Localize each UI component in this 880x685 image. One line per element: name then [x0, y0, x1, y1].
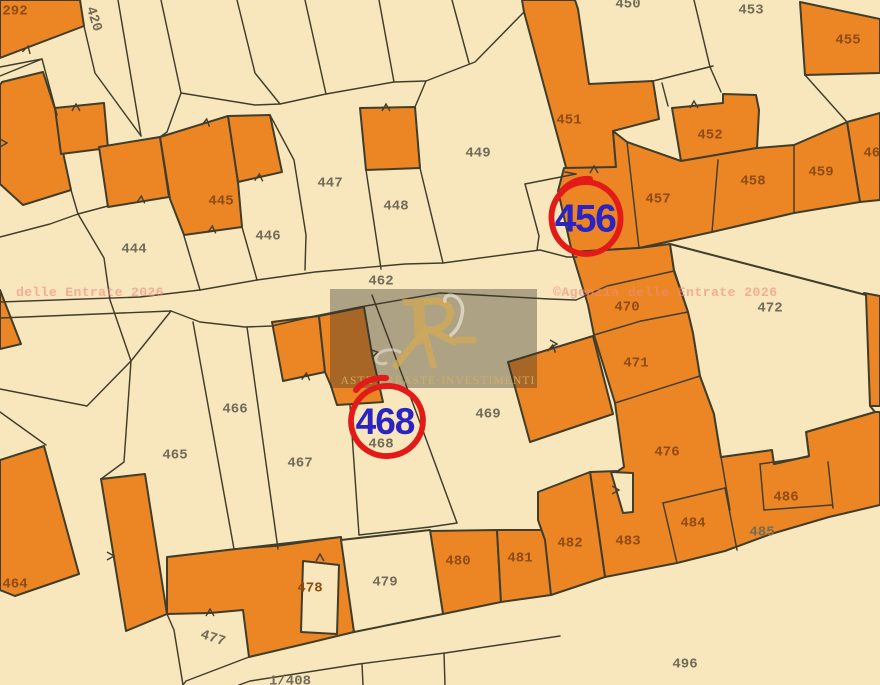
svg-text:480: 480 [445, 554, 470, 570]
svg-text:469: 469 [475, 407, 500, 423]
svg-text:478: 478 [297, 581, 322, 597]
svg-text:455: 455 [835, 33, 860, 49]
svg-text:©Agenzia delle Entrate 2026: ©Agenzia delle Entrate 2026 [553, 285, 777, 300]
svg-text:466: 466 [222, 402, 247, 418]
svg-text:484: 484 [680, 516, 705, 532]
svg-text:452: 452 [697, 128, 722, 144]
svg-text:1/408: 1/408 [269, 674, 311, 685]
svg-text:481: 481 [507, 551, 532, 567]
svg-text:292: 292 [2, 4, 27, 20]
svg-text:464: 464 [2, 577, 27, 593]
svg-text:451: 451 [556, 113, 581, 129]
svg-text:462: 462 [368, 274, 393, 290]
svg-text:447: 447 [317, 176, 342, 192]
svg-text:445: 445 [208, 194, 233, 210]
svg-text:465: 465 [162, 448, 187, 464]
svg-text:483: 483 [615, 534, 640, 550]
svg-text:468: 468 [356, 401, 415, 442]
svg-text:472: 472 [757, 301, 782, 317]
svg-text:467: 467 [287, 456, 312, 472]
svg-text:479: 479 [372, 575, 397, 591]
svg-text:450: 450 [615, 0, 640, 13]
svg-text:448: 448 [383, 199, 408, 215]
svg-text:460: 460 [863, 146, 880, 162]
svg-text:485: 485 [749, 525, 774, 541]
svg-text:496: 496 [672, 657, 697, 673]
svg-text:449: 449 [465, 146, 490, 162]
svg-text:453: 453 [738, 3, 763, 19]
svg-text:470: 470 [614, 300, 639, 316]
svg-text:444: 444 [121, 242, 146, 258]
svg-text:delle Entrate 2026: delle Entrate 2026 [16, 285, 164, 300]
svg-text:459: 459 [808, 165, 833, 181]
svg-text:486: 486 [773, 490, 798, 506]
svg-text:456: 456 [555, 197, 616, 240]
svg-text:457: 457 [645, 192, 670, 208]
svg-text:476: 476 [654, 445, 679, 461]
svg-text:482: 482 [557, 536, 582, 552]
svg-text:471: 471 [623, 356, 648, 372]
svg-text:458: 458 [740, 174, 765, 190]
svg-text:446: 446 [255, 229, 280, 245]
